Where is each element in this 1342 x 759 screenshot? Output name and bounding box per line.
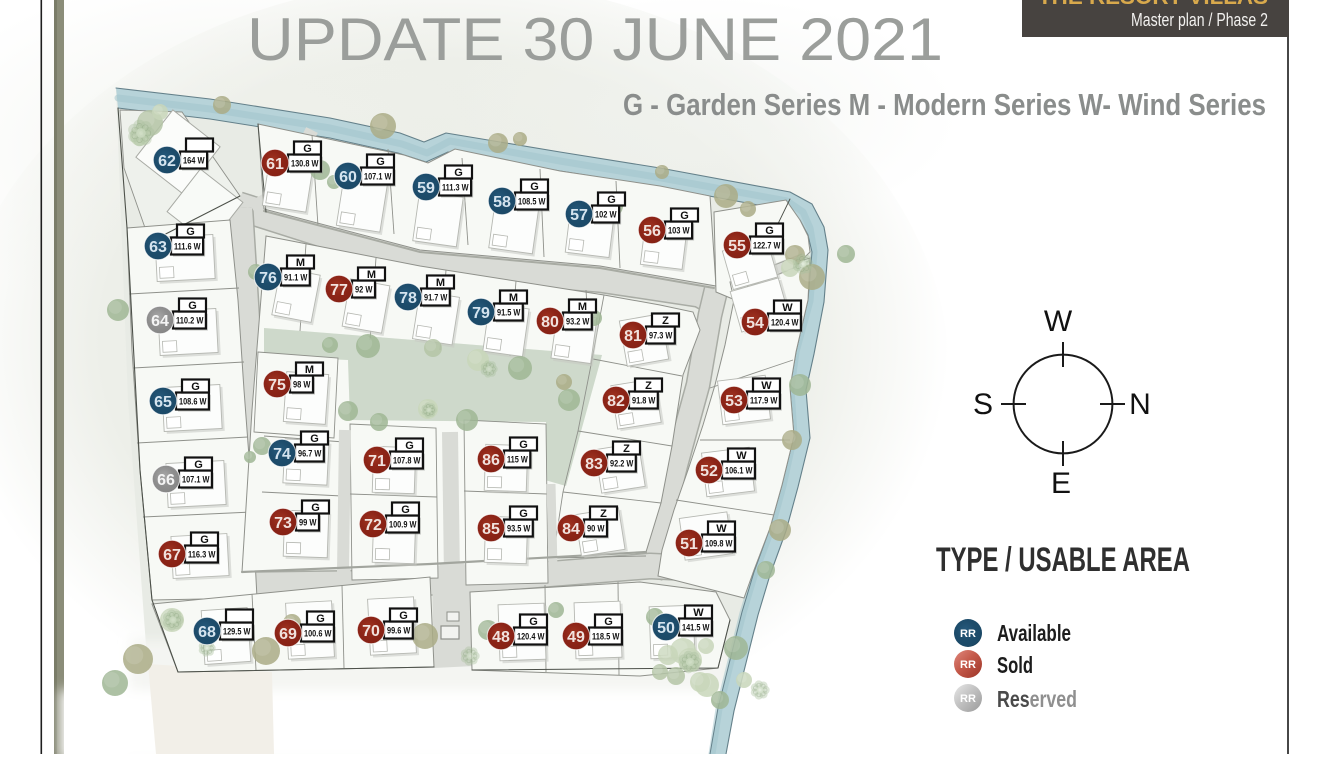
svg-text:W: W (782, 302, 793, 314)
svg-text:S: S (973, 388, 993, 421)
svg-text:57: 57 (570, 207, 588, 224)
svg-text:G: G (194, 459, 203, 471)
svg-text:Z: Z (645, 380, 652, 392)
svg-text:96.7 W: 96.7 W (298, 449, 322, 459)
svg-text:68: 68 (198, 624, 216, 641)
svg-text:120.4 W: 120.4 W (517, 632, 545, 642)
svg-text:W: W (1044, 305, 1073, 338)
svg-text:TYPE / USABLE AREA: TYPE / USABLE AREA (936, 541, 1190, 579)
svg-text:93.2 W: 93.2 W (566, 317, 590, 327)
svg-text:61: 61 (266, 156, 284, 173)
svg-text:122.7 W: 122.7 W (753, 241, 781, 251)
svg-text:G: G (188, 300, 197, 312)
svg-text:78: 78 (399, 290, 417, 307)
svg-text:115 W: 115 W (507, 455, 528, 465)
svg-text:G: G (607, 194, 616, 206)
svg-text:G: G (405, 440, 414, 452)
svg-text:G: G (454, 167, 463, 179)
svg-text:52: 52 (700, 463, 718, 480)
svg-text:N: N (1129, 388, 1151, 421)
svg-text:116.3 W: 116.3 W (188, 550, 216, 560)
svg-text:80: 80 (541, 314, 559, 331)
svg-text:102 W: 102 W (595, 210, 617, 220)
svg-text:49: 49 (567, 629, 585, 646)
svg-text:91.1 W: 91.1 W (284, 273, 308, 283)
svg-text:G: G (303, 143, 312, 155)
svg-text:G: G (530, 181, 539, 193)
svg-text:91.5 W: 91.5 W (497, 308, 521, 318)
svg-text:50: 50 (657, 620, 675, 637)
svg-text:93.5 W: 93.5 W (507, 524, 531, 534)
svg-text:79: 79 (472, 305, 490, 322)
svg-text:99.6 W: 99.6 W (387, 626, 411, 636)
svg-text:M: M (296, 257, 305, 269)
svg-text:59: 59 (417, 180, 435, 197)
svg-text:73: 73 (274, 515, 292, 532)
svg-text:91.7 W: 91.7 W (424, 293, 448, 303)
svg-text:E: E (1051, 467, 1071, 500)
svg-text:Z: Z (600, 508, 607, 520)
svg-text:71: 71 (368, 453, 386, 470)
svg-text:M: M (509, 292, 518, 304)
svg-text:58: 58 (493, 194, 511, 211)
svg-text:RR: RR (960, 628, 976, 640)
svg-text:97.3 W: 97.3 W (649, 331, 673, 341)
svg-text:G: G (316, 613, 325, 625)
svg-text:76: 76 (259, 270, 277, 287)
svg-text:53: 53 (725, 393, 743, 410)
svg-text:81: 81 (624, 328, 642, 345)
svg-text:62: 62 (158, 153, 176, 170)
svg-text:120.4 W: 120.4 W (771, 318, 799, 328)
svg-text:G: G (311, 502, 320, 514)
svg-text:92 W: 92 W (355, 285, 373, 295)
svg-text:82: 82 (607, 393, 625, 410)
svg-text:86: 86 (482, 452, 500, 469)
svg-text:G: G (604, 616, 613, 628)
svg-text:111.6 W: 111.6 W (174, 242, 201, 252)
svg-text:G: G (191, 381, 200, 393)
svg-text:109.8 W: 109.8 W (705, 539, 733, 549)
svg-text:100.9 W: 100.9 W (389, 520, 417, 530)
svg-text:164 W: 164 W (183, 156, 205, 166)
svg-text:65: 65 (154, 394, 172, 411)
svg-text:91.8 W: 91.8 W (632, 396, 656, 406)
svg-text:98 W: 98 W (293, 380, 311, 390)
svg-text:Reserved: Reserved (997, 686, 1077, 712)
svg-text:G - Garden Series M - Modern S: G - Garden Series M - Modern Series W- W… (623, 87, 1266, 122)
svg-text:63: 63 (149, 239, 167, 256)
svg-text:M: M (367, 269, 376, 281)
svg-text:Z: Z (623, 443, 630, 455)
svg-text:100.6 W: 100.6 W (304, 629, 332, 639)
svg-text:G: G (519, 439, 528, 451)
svg-text:107.1 W: 107.1 W (364, 172, 392, 182)
svg-text:108.6 W: 108.6 W (179, 397, 207, 407)
svg-text:56: 56 (643, 223, 661, 240)
svg-text:M: M (305, 364, 314, 376)
svg-text:99 W: 99 W (299, 518, 317, 528)
svg-text:THE RESORT VILLAS: THE RESORT VILLAS (1038, 0, 1268, 9)
svg-text:G: G (200, 534, 209, 546)
svg-text:UPDATE 30 JUNE 2021: UPDATE 30 JUNE 2021 (247, 6, 943, 73)
svg-text:W: W (761, 380, 772, 392)
svg-text:130.8 W: 130.8 W (291, 159, 319, 169)
svg-text:111.3 W: 111.3 W (442, 183, 469, 193)
svg-text:Master plan / Phase 2: Master plan / Phase 2 (1131, 10, 1268, 30)
svg-text:108.5 W: 108.5 W (518, 197, 546, 207)
svg-text:117.9 W: 117.9 W (750, 396, 778, 406)
svg-text:85: 85 (482, 521, 500, 538)
svg-text:RR: RR (960, 659, 976, 671)
svg-text:110.2 W: 110.2 W (176, 316, 204, 326)
svg-text:M: M (578, 301, 587, 313)
svg-text:106.1 W: 106.1 W (725, 466, 753, 476)
svg-text:G: G (376, 156, 385, 168)
svg-text:Available: Available (997, 620, 1071, 646)
svg-text:G: G (765, 225, 774, 237)
svg-text:W: W (716, 523, 727, 535)
svg-text:G: G (680, 210, 689, 222)
svg-text:141.5 W: 141.5 W (682, 623, 710, 633)
svg-text:W: W (693, 607, 704, 619)
svg-text:69: 69 (279, 626, 297, 643)
svg-text:77: 77 (330, 282, 348, 299)
svg-text:M: M (436, 277, 445, 289)
svg-text:72: 72 (364, 517, 382, 534)
svg-text:G: G (401, 504, 410, 516)
svg-text:66: 66 (157, 472, 175, 489)
svg-text:RR: RR (960, 693, 976, 705)
svg-text:51: 51 (680, 536, 698, 553)
svg-text:84: 84 (562, 521, 580, 538)
svg-text:74: 74 (273, 446, 291, 463)
svg-text:75: 75 (268, 377, 286, 394)
svg-text:G: G (529, 616, 538, 628)
svg-text:Z: Z (662, 315, 669, 327)
svg-text:70: 70 (362, 623, 380, 640)
svg-text:129.5 W: 129.5 W (223, 627, 251, 637)
svg-text:83: 83 (585, 456, 603, 473)
svg-text:107.8 W: 107.8 W (393, 456, 421, 466)
svg-text:54: 54 (746, 315, 764, 332)
svg-text:G: G (186, 226, 195, 238)
svg-text:55: 55 (728, 238, 746, 255)
svg-text:W: W (736, 450, 747, 462)
svg-text:G: G (399, 610, 408, 622)
svg-text:48: 48 (492, 629, 510, 646)
svg-text:G: G (519, 508, 528, 520)
svg-text:G: G (310, 433, 319, 445)
svg-text:67: 67 (163, 547, 181, 564)
svg-text:90 W: 90 W (587, 524, 605, 534)
svg-text:118.5 W: 118.5 W (592, 632, 620, 642)
svg-text:103 W: 103 W (668, 226, 690, 236)
svg-text:60: 60 (339, 169, 357, 186)
svg-text:64: 64 (151, 313, 169, 330)
svg-text:107.1 W: 107.1 W (182, 475, 210, 485)
svg-text:92.2 W: 92.2 W (610, 459, 634, 469)
svg-text:Sold: Sold (997, 652, 1033, 678)
